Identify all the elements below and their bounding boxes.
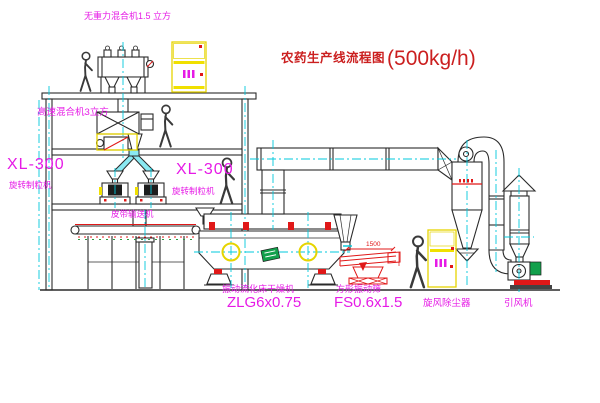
label-sieve-dimension: 1500	[366, 242, 380, 249]
label-gravity-free-mixer: 无重力混合机1.5 立方	[84, 12, 171, 21]
diagram-title: 农药生产线流程图 (500kg/h)	[281, 48, 476, 69]
label-cyclone: 旋风除尘器	[423, 299, 471, 309]
gravity-free-mixer	[98, 46, 154, 93]
label-xl300-left-model: XL-300	[7, 157, 65, 173]
label-high-speed-mixer: 高速混合机3立方	[37, 108, 109, 118]
vibrating-sieve	[340, 247, 400, 284]
person-top-platform	[81, 52, 92, 91]
label-sieve-model: FS0.6x1.5	[334, 295, 402, 310]
label-xl300-right-name: 旋转制粒机	[172, 187, 215, 196]
title-chinese: 农药生产线流程图	[281, 52, 385, 65]
cad-flow-diagram: 农药生产线流程图 (500kg/h) 无重力混合机1.5 立方 高速混合机3立方…	[0, 0, 600, 403]
control-cabinet-1	[172, 42, 206, 92]
cabinet-2-details	[430, 232, 454, 268]
title-capacity: (500kg/h)	[387, 48, 476, 69]
control-cabinet-2	[428, 230, 456, 287]
cabinet-1-details	[174, 44, 205, 90]
label-fan: 引风机	[504, 299, 533, 309]
person-ground	[411, 236, 426, 287]
belt-conveyor	[71, 226, 200, 289]
label-belt-conveyor: 皮带输送机	[111, 210, 154, 219]
label-xl300-left-name: 旋转制粒机	[9, 181, 52, 190]
person-floor-2	[160, 105, 172, 146]
exhaust-duct	[257, 148, 452, 214]
label-xl300-right-model: XL-300	[176, 162, 234, 178]
label-dryer-model: ZLG6x0.75	[227, 295, 301, 310]
label-dryer-name: 振动流化床干燥机	[222, 285, 294, 294]
label-sieve-name: 方形振动筛	[336, 285, 381, 294]
